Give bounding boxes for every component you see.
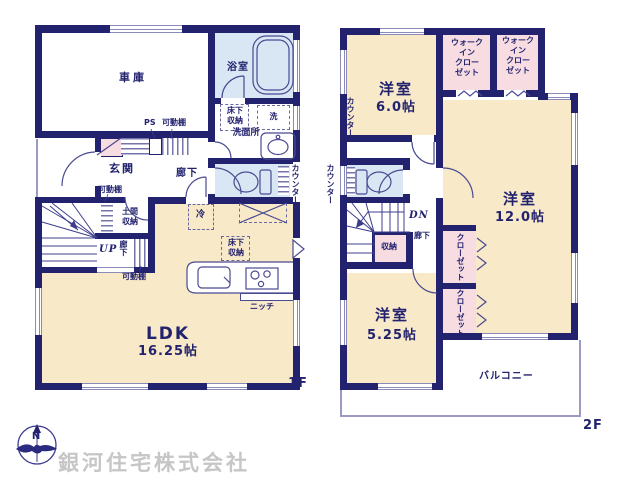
staircase-1f <box>42 203 97 261</box>
wall <box>208 32 215 138</box>
wall <box>42 197 97 203</box>
label-room6-size: 6.0帖 <box>358 100 434 116</box>
label-dn: DN <box>409 210 429 223</box>
label-hallway-vertical: 廊下 <box>118 240 128 266</box>
label-entrance: 玄関 <box>100 162 144 176</box>
label-floor-1f: 1F <box>288 376 308 392</box>
doma-door-gap <box>125 197 148 203</box>
hall-ldk-door-gap <box>186 197 208 204</box>
label-niche: ニッチ <box>250 302 274 312</box>
wall <box>340 197 410 203</box>
label-closet2: クローゼット <box>455 289 465 333</box>
wall <box>406 232 413 269</box>
balcony-line <box>340 415 581 417</box>
label-garage: 車庫 <box>105 71 161 85</box>
label-ldk-size: 16.25帖 <box>128 344 208 360</box>
company-watermark: 銀河住宅株式会社 <box>58 447 250 477</box>
toilet2f-door-gap <box>403 170 410 194</box>
wall <box>490 28 497 97</box>
wall <box>35 25 42 138</box>
wall <box>340 158 410 165</box>
window <box>380 28 424 35</box>
washroom-door-gap <box>208 142 215 158</box>
wall <box>436 142 443 168</box>
movable-shelf-hatch-top <box>162 138 189 155</box>
wall <box>208 197 300 204</box>
window <box>340 300 347 345</box>
wall <box>35 383 300 390</box>
compass-icon: N <box>16 424 57 464</box>
wall <box>42 267 97 273</box>
window <box>340 166 347 195</box>
label-wic2: ウォーク イン クロー ゼット <box>497 36 539 76</box>
label-room6: 洋室 <box>358 80 434 99</box>
label-room12-size: 12.0帖 <box>480 210 560 226</box>
window <box>293 300 300 346</box>
label-floor-2f: 2F <box>583 418 603 434</box>
wall <box>42 131 215 138</box>
label-storage-2f: 収納 <box>372 242 406 252</box>
label-balcony: バルコニー <box>479 371 534 384</box>
wic2-door-gap <box>504 90 526 97</box>
label-counter-room6: カウンター <box>345 97 355 137</box>
toilet1f-counter-hatch <box>278 166 289 195</box>
label-ps: PS <box>144 118 156 128</box>
wall <box>35 25 110 33</box>
label-room525-size: 5.25帖 <box>352 328 432 344</box>
wall <box>443 225 476 231</box>
wall <box>436 198 443 267</box>
pipe-space-box <box>149 138 162 155</box>
balcony-line <box>340 390 342 417</box>
label-underfloor-wash: 床下 収納 <box>221 106 249 126</box>
wall <box>436 28 443 142</box>
window <box>482 333 548 340</box>
label-up: UP <box>99 244 117 257</box>
balcony-line <box>579 340 581 417</box>
bath-door-gap <box>221 98 245 104</box>
wall <box>95 233 148 239</box>
room6-door-gap <box>412 135 434 142</box>
window <box>82 383 148 390</box>
entrance-shelf-hatch <box>121 138 149 155</box>
label-room525: 洋室 <box>352 306 432 325</box>
window <box>207 383 247 390</box>
window <box>571 113 578 165</box>
label-ldk: LDK <box>128 324 208 345</box>
window <box>35 288 42 335</box>
window <box>548 93 570 100</box>
wall <box>436 267 443 390</box>
label-hallway-1f: 廊下 <box>168 168 206 181</box>
window <box>378 383 432 390</box>
label-counter-1f: カウンター <box>290 164 300 208</box>
toilet2f-counter-hatch <box>347 167 355 195</box>
label-washroom: 洗面所 <box>221 128 271 139</box>
porch-line <box>36 139 38 197</box>
niche-box <box>240 293 294 301</box>
window <box>571 253 578 303</box>
wall <box>155 197 188 204</box>
wall <box>182 25 300 33</box>
wall <box>148 197 155 273</box>
garage-shutter <box>110 25 182 33</box>
room-toilet2f-floor <box>347 165 403 197</box>
wic1-door-gap <box>456 90 478 97</box>
overhead-cabinet-box <box>239 203 287 223</box>
doma-shelf-hatch <box>101 200 113 233</box>
label-hallway-2f: 廊下 <box>414 231 430 241</box>
label-fridge: 冷 <box>188 210 214 221</box>
room525-door-gap <box>413 262 436 269</box>
label-counter-toilet2f: カウンター <box>325 164 335 208</box>
window <box>340 50 347 94</box>
label-wic1: ウォーク イン クロー ゼット <box>444 38 490 78</box>
compass-north-label: N <box>32 431 40 442</box>
toilet1f-door-gap <box>208 168 215 194</box>
floor-plan-canvas: N 車庫 浴室 床下 収納 洗 洗面所 カウンター PS 可動棚 玄関 廊下 可… <box>0 0 640 480</box>
label-shelf-entrance: 可動棚 <box>98 185 122 195</box>
window <box>293 106 300 130</box>
wall <box>538 28 545 100</box>
wall <box>340 262 413 269</box>
label-doma-storage: 土間 収納 <box>113 207 147 227</box>
label-closet1: クローゼット <box>455 233 465 283</box>
label-shelf-top: 可動棚 <box>162 118 186 128</box>
label-room12: 洋室 <box>480 190 560 209</box>
label-laundry: 洗 <box>262 112 286 122</box>
window <box>293 40 300 92</box>
kitchen-door-gap <box>293 238 300 258</box>
label-shelf-hall: 可動棚 <box>122 272 146 282</box>
label-bathroom: 浴室 <box>216 62 260 75</box>
wall <box>215 158 300 164</box>
label-underfloor-kitchen: 床下 収納 <box>222 238 250 258</box>
